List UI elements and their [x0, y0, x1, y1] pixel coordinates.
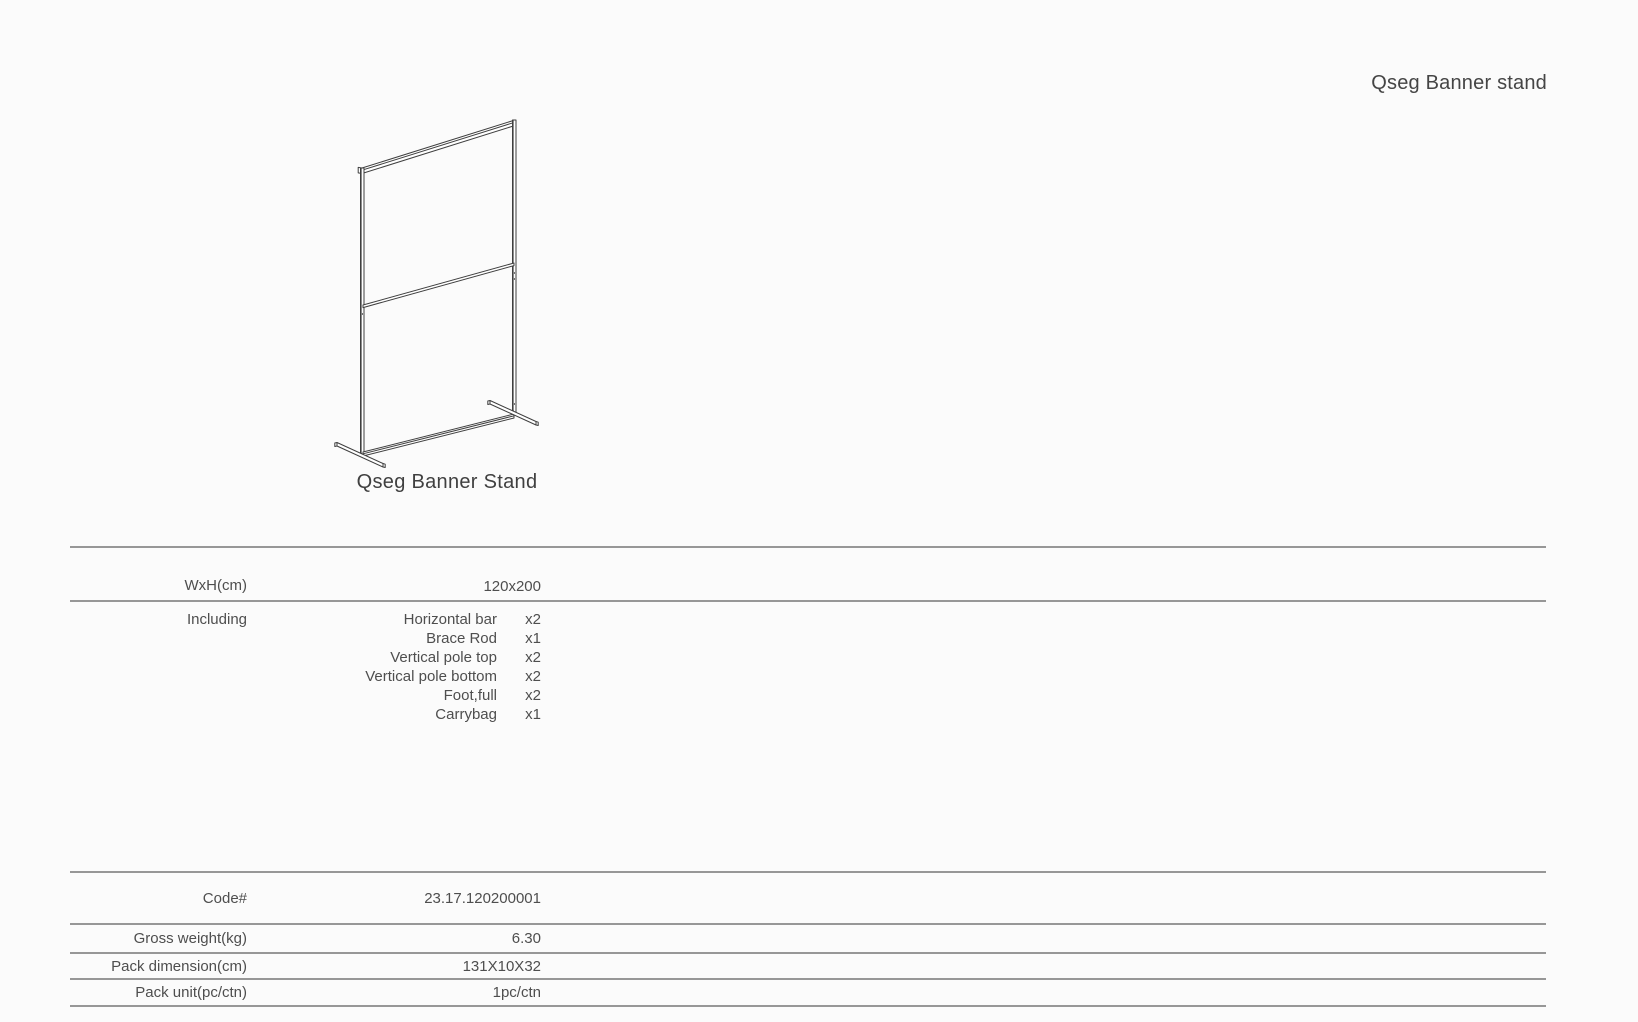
including-item: Horizontal bar x2 — [247, 610, 541, 629]
wxh-value: 120x200 — [247, 578, 541, 595]
vertical-pole-right — [513, 120, 517, 414]
pack-dimension-label: Pack dimension(cm) — [70, 957, 247, 976]
item-qty: x1 — [497, 705, 541, 724]
top-horizontal-bar — [358, 120, 515, 174]
item-name: Vertical pole bottom — [247, 667, 497, 686]
spec-row-pack-dimension: Pack dimension(cm) 131X10X32 — [70, 954, 1546, 980]
spec-row-including: Including Horizontal bar x2 Brace Rod x1… — [70, 602, 1546, 873]
banner-stand-drawing — [297, 92, 547, 477]
item-qty: x2 — [497, 610, 541, 629]
including-item: Foot,full x2 — [247, 686, 541, 705]
vertical-pole-left — [361, 168, 365, 456]
spec-row-code: Code# 23.17.120200001 — [70, 873, 1546, 925]
gross-weight-label: Gross weight(kg) — [70, 929, 247, 948]
pack-unit-value: 1pc/ctn — [247, 984, 541, 1001]
page-title: Qseg Banner stand — [1371, 72, 1547, 95]
figure-caption: Qseg Banner Stand — [300, 471, 594, 494]
bottom-horizontal-bar — [363, 414, 514, 456]
spec-table: WxH(cm) 120x200 Including Horizontal bar… — [70, 546, 1546, 1007]
brace-rod — [363, 263, 514, 308]
including-item: Vertical pole bottom x2 — [247, 667, 541, 686]
item-name: Carrybag — [247, 705, 497, 724]
pack-unit-label: Pack unit(pc/ctn) — [70, 983, 247, 1002]
including-list: Horizontal bar x2 Brace Rod x1 Vertical … — [247, 610, 541, 724]
item-name: Horizontal bar — [247, 610, 497, 629]
including-item: Brace Rod x1 — [247, 629, 541, 648]
item-name: Foot,full — [247, 686, 497, 705]
spec-sheet-page: Qseg Banner stand — [0, 0, 1638, 1022]
item-name: Vertical pole top — [247, 648, 497, 667]
item-qty: x1 — [497, 629, 541, 648]
including-item: Vertical pole top x2 — [247, 648, 541, 667]
gross-weight-value: 6.30 — [247, 930, 541, 947]
item-qty: x2 — [497, 648, 541, 667]
item-qty: x2 — [497, 686, 541, 705]
code-label: Code# — [70, 889, 247, 908]
spec-row-gross-weight: Gross weight(kg) 6.30 — [70, 925, 1546, 954]
including-label: Including — [70, 610, 247, 629]
code-value: 23.17.120200001 — [247, 890, 541, 907]
item-qty: x2 — [497, 667, 541, 686]
item-name: Brace Rod — [247, 629, 497, 648]
product-figure — [297, 92, 547, 477]
wxh-label: WxH(cm) — [70, 576, 247, 595]
spec-row-wxh: WxH(cm) 120x200 — [70, 548, 1546, 602]
spec-row-pack-unit: Pack unit(pc/ctn) 1pc/ctn — [70, 980, 1546, 1007]
including-item: Carrybag x1 — [247, 705, 541, 724]
pack-dimension-value: 131X10X32 — [247, 958, 541, 975]
